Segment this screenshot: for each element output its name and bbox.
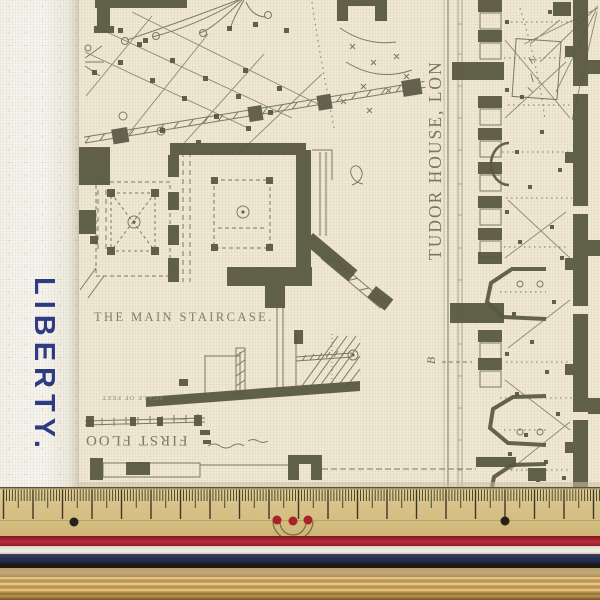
ruler-dot-black [501,517,510,526]
label-main-staircase: THE MAIN STAIRCASE. [94,310,274,325]
fabric-print-area: THE MAIN STAIRCASE. TUDOR HOUSE, LON FIR… [0,0,600,487]
label-tudor-house: TUDOR HOUSE, LON [425,0,449,260]
ruler-dot-black [70,518,79,527]
label-plan-letter-b: B [424,357,439,364]
fabric-product-photo: THE MAIN STAIRCASE. TUDOR HOUSE, LON FIR… [0,0,600,600]
ruler-tick-marks [4,490,600,520]
label-first-floor: FIRST FLOO [84,431,188,448]
ruler-dot-red [289,517,298,526]
ribbon-stripe-navy [0,554,600,564]
wood-band-upper [0,568,600,577]
liberty-brand-text: LIBERTY. [24,277,64,465]
ribbon-stripe-red [0,536,600,546]
measuring-ruler [0,487,600,536]
ruler-dot-red [273,516,282,525]
ruler-scale [0,488,600,537]
wood-band-grain [0,577,600,593]
wood-band-lower [0,593,600,600]
ribbon-stripe-white [0,546,600,554]
label-scale-of-feet: SCALE OF FEET [101,394,163,401]
architectural-print-linework [0,0,600,487]
ruler-dot-red [304,516,313,525]
